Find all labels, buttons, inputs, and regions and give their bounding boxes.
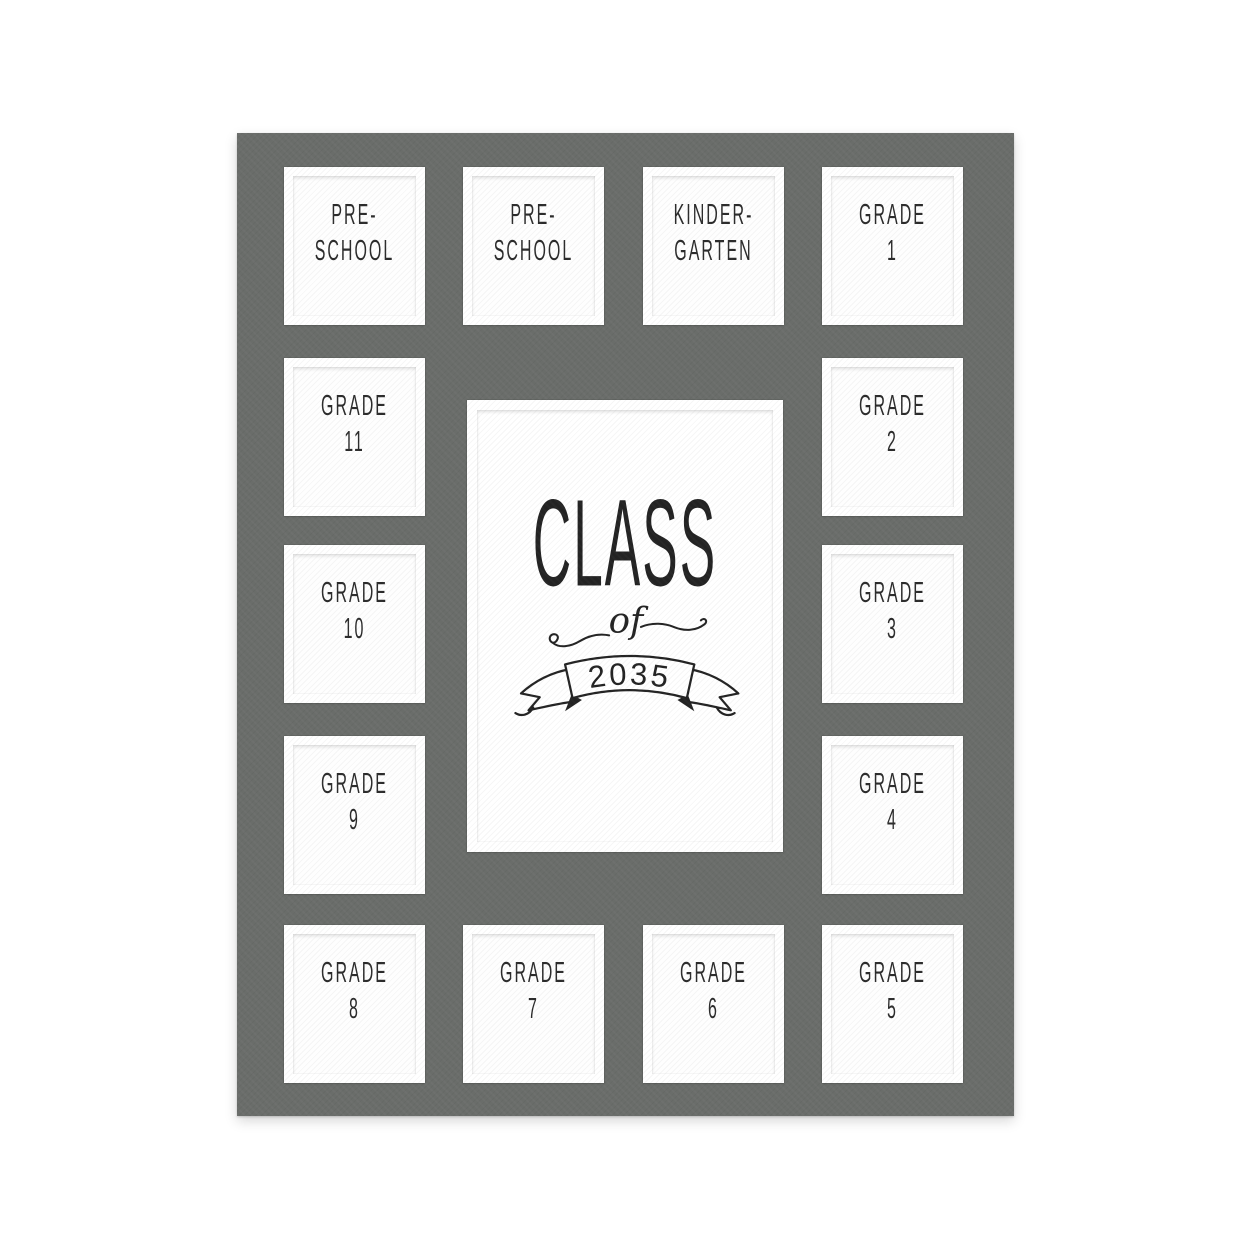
- opening-grade-2: GRADE 2: [822, 358, 963, 516]
- label-line-1: GRADE: [321, 768, 388, 804]
- opening-preschool-2: PRE- SCHOOL: [463, 167, 604, 325]
- label-line-1: KINDER-: [674, 199, 754, 235]
- label-line-1: PRE-: [315, 199, 395, 235]
- opening-center-class-of-year: CLASS of: [467, 400, 783, 852]
- label-line-1: PRE-: [494, 199, 574, 235]
- label-line-2: 5: [859, 993, 926, 1029]
- ribbon-band: [565, 656, 694, 698]
- opening-grade-6-card: GRADE 6: [652, 934, 775, 1074]
- label-line-2: SCHOOL: [494, 235, 574, 271]
- label-line-2: 9: [321, 804, 388, 840]
- label-line-1: GRADE: [859, 577, 926, 613]
- opening-grade-8: GRADE 8: [284, 925, 425, 1083]
- label-line-2: 4: [859, 804, 926, 840]
- opening-label: GRADE 7: [500, 957, 567, 1029]
- class-word-text: CLASS: [533, 475, 717, 613]
- opening-grade-1-card: GRADE 1: [831, 176, 954, 316]
- opening-grade-9: GRADE 9: [284, 736, 425, 894]
- opening-grade-5-card: GRADE 5: [831, 934, 954, 1074]
- opening-grade-7: GRADE 7: [463, 925, 604, 1083]
- opening-grade-10-card: GRADE 10: [293, 554, 416, 694]
- label-line-1: GRADE: [859, 957, 926, 993]
- ribbon-tail-left: [521, 669, 573, 710]
- school-years-photo-mat: PRE- SCHOOL PRE- SCHOOL KINDER- GARTEN: [237, 133, 1014, 1116]
- opening-grade-6: GRADE 6: [643, 925, 784, 1083]
- product-photo: PRE- SCHOOL PRE- SCHOOL KINDER- GARTEN: [0, 0, 1250, 1250]
- opening-label: GRADE 3: [859, 577, 926, 649]
- opening-grade-3-card: GRADE 3: [831, 554, 954, 694]
- label-line-2: 1: [859, 235, 926, 271]
- opening-label: GRADE 4: [859, 768, 926, 840]
- ribbon-tail-right: [687, 669, 739, 710]
- opening-grade-11: GRADE 11: [284, 358, 425, 516]
- opening-grade-11-card: GRADE 11: [293, 367, 416, 507]
- opening-grade-5: GRADE 5: [822, 925, 963, 1083]
- label-line-1: GRADE: [321, 957, 388, 993]
- of-text: of: [609, 601, 649, 642]
- opening-label: GRADE 10: [321, 577, 388, 649]
- opening-label: GRADE 6: [680, 957, 747, 1029]
- opening-grade-3: GRADE 3: [822, 545, 963, 703]
- opening-label: KINDER- GARTEN: [674, 199, 754, 271]
- label-line-2: 6: [680, 993, 747, 1029]
- flourish-left-swash: [550, 634, 609, 646]
- class-of-year-artwork: CLASS of: [477, 410, 773, 842]
- label-line-1: GRADE: [500, 957, 567, 993]
- opening-preschool-1: PRE- SCHOOL: [284, 167, 425, 325]
- opening-grade-8-card: GRADE 8: [293, 934, 416, 1074]
- opening-label: GRADE 9: [321, 768, 388, 840]
- label-line-2: SCHOOL: [315, 235, 395, 271]
- opening-grade-4: GRADE 4: [822, 736, 963, 894]
- opening-kindergarten-card: KINDER- GARTEN: [652, 176, 775, 316]
- label-line-1: GRADE: [321, 577, 388, 613]
- opening-label: GRADE 1: [859, 199, 926, 271]
- label-line-2: 11: [321, 426, 388, 462]
- opening-label: PRE- SCHOOL: [315, 199, 395, 271]
- label-line-1: GRADE: [859, 768, 926, 804]
- label-line-1: GRADE: [859, 199, 926, 235]
- opening-kindergarten: KINDER- GARTEN: [643, 167, 784, 325]
- label-line-1: GRADE: [680, 957, 747, 993]
- flourish-right-swash: [641, 619, 706, 630]
- label-line-2: 2: [859, 426, 926, 462]
- opening-preschool-2-card: PRE- SCHOOL: [472, 176, 595, 316]
- label-line-1: GRADE: [321, 390, 388, 426]
- opening-grade-2-card: GRADE 2: [831, 367, 954, 507]
- opening-label: PRE- SCHOOL: [494, 199, 574, 271]
- opening-preschool-1-card: PRE- SCHOOL: [293, 176, 416, 316]
- opening-label: GRADE 8: [321, 957, 388, 1029]
- opening-grade-7-card: GRADE 7: [472, 934, 595, 1074]
- opening-grade-1: GRADE 1: [822, 167, 963, 325]
- label-line-1: GRADE: [859, 390, 926, 426]
- class-of-year-print: CLASS of: [477, 410, 773, 842]
- opening-grade-10: GRADE 10: [284, 545, 425, 703]
- label-line-2: GARTEN: [674, 235, 754, 271]
- opening-label: GRADE 11: [321, 390, 388, 462]
- opening-label: GRADE 2: [859, 390, 926, 462]
- label-line-2: 10: [321, 613, 388, 649]
- opening-grade-9-card: GRADE 9: [293, 745, 416, 885]
- label-line-2: 8: [321, 993, 388, 1029]
- label-line-2: 7: [500, 993, 567, 1029]
- opening-label: GRADE 5: [859, 957, 926, 1029]
- opening-grade-4-card: GRADE 4: [831, 745, 954, 885]
- label-line-2: 3: [859, 613, 926, 649]
